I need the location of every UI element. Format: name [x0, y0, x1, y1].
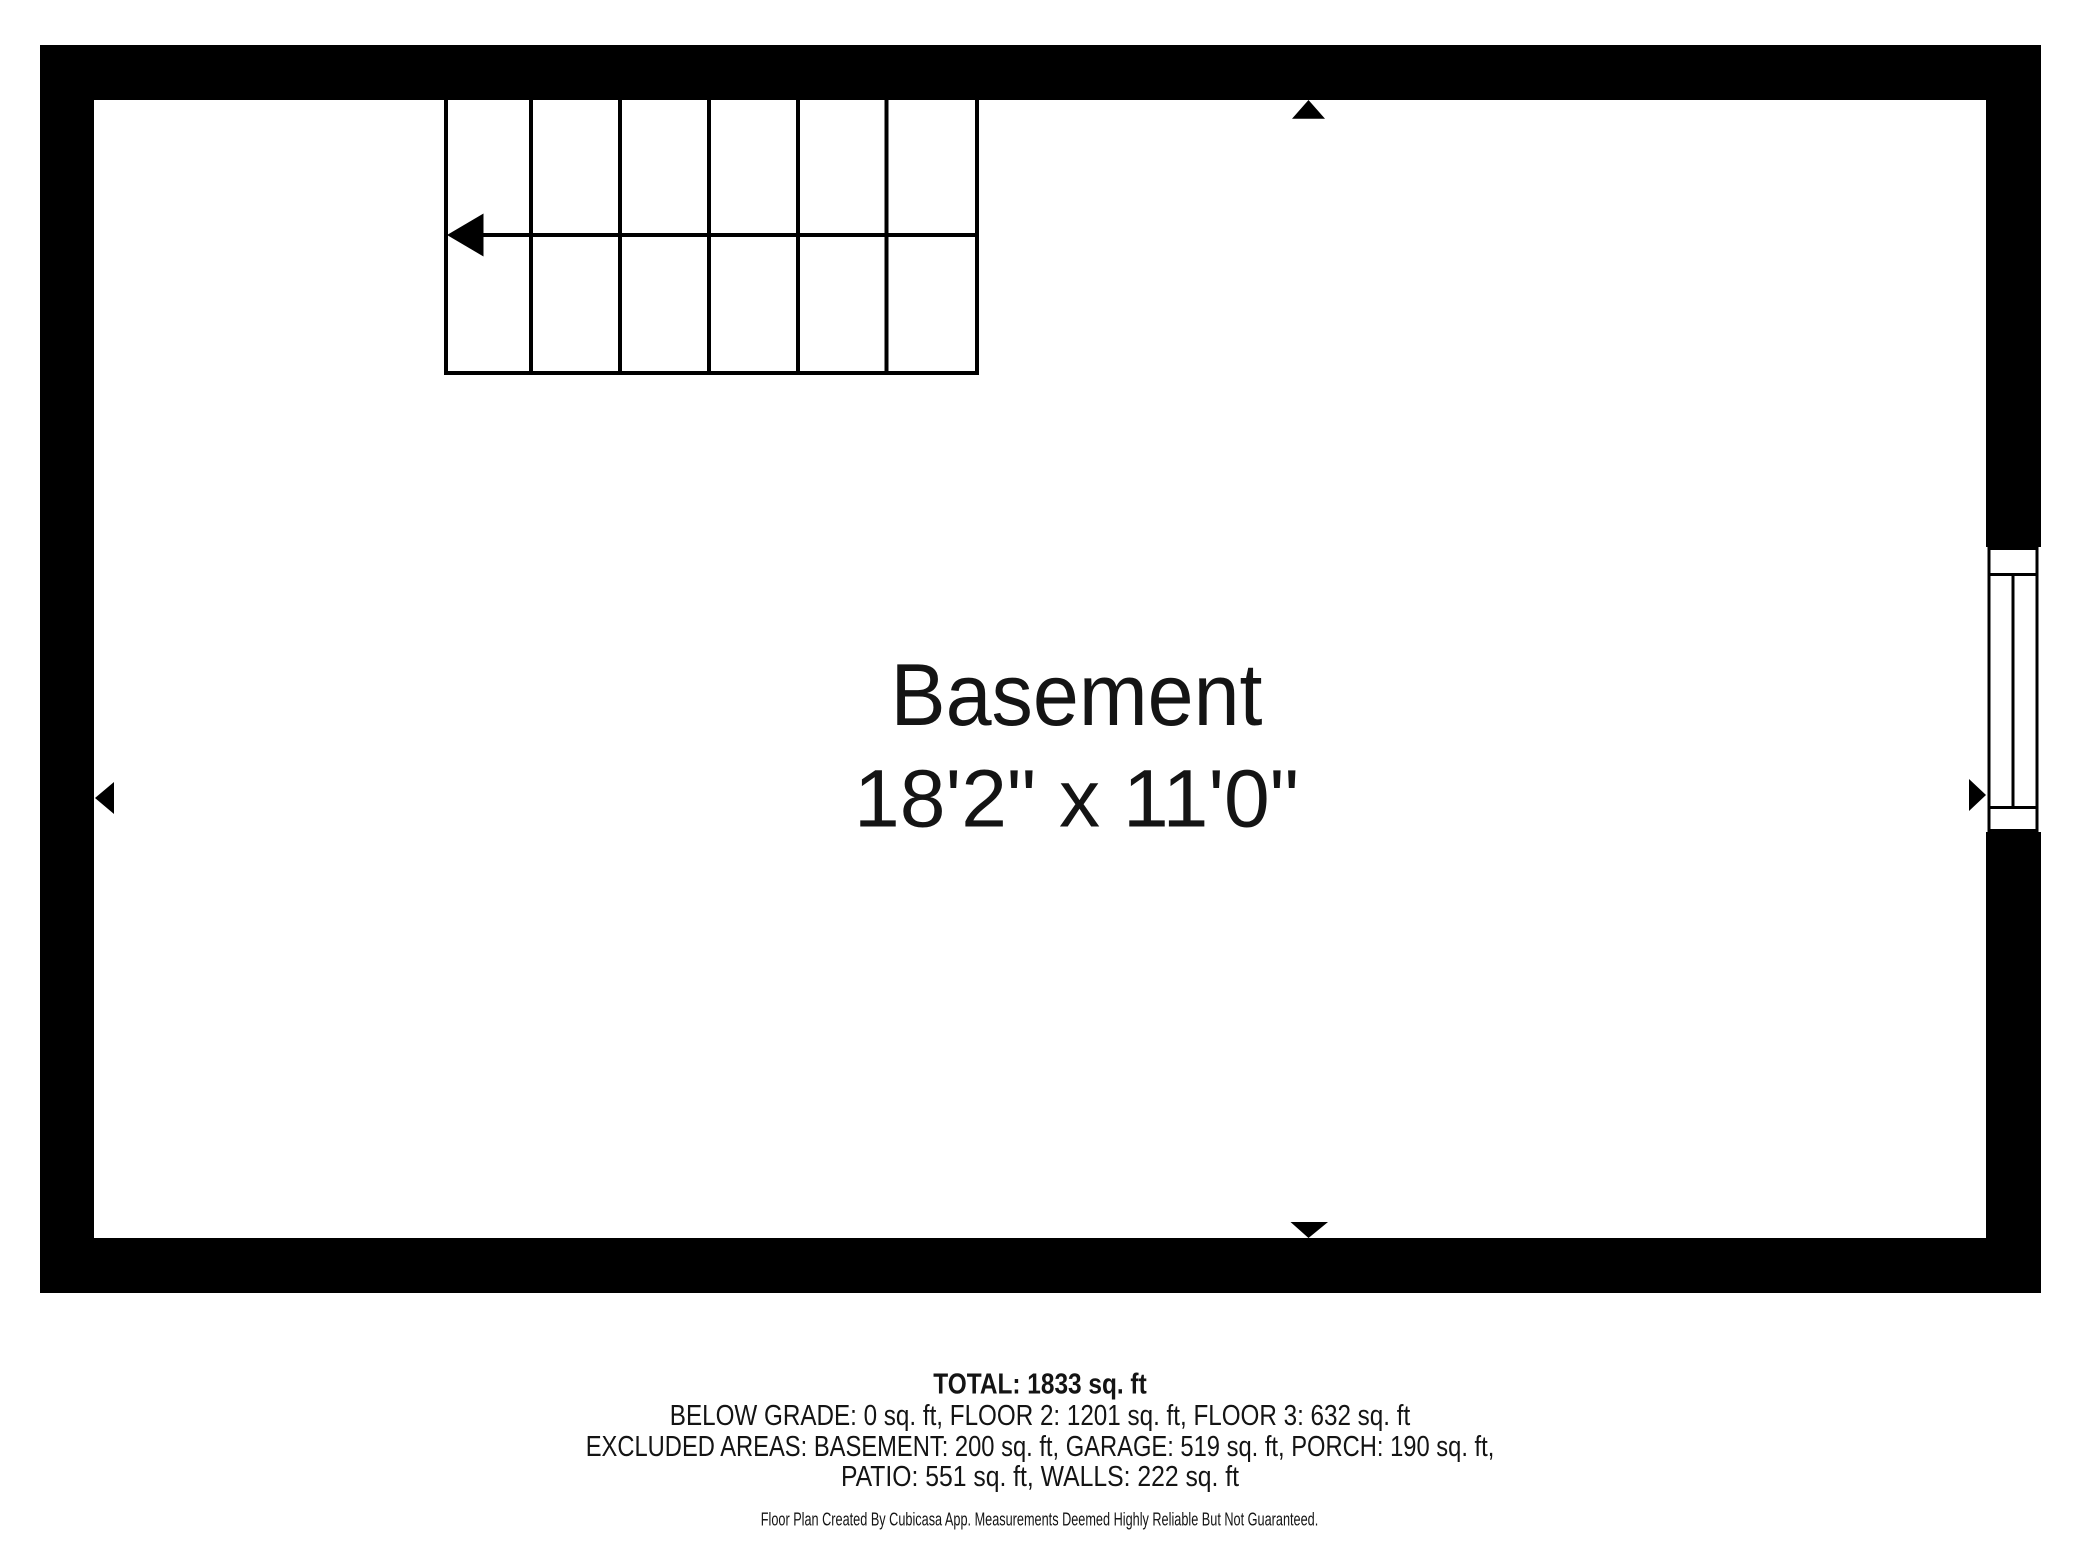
- svg-text:PATIO: 551 sq. ft, WALLS: 222: PATIO: 551 sq. ft, WALLS: 222 sq. ft: [841, 1461, 1239, 1493]
- svg-text:18'2" x 11'0": 18'2" x 11'0": [854, 754, 1299, 845]
- svg-text:Basement: Basement: [891, 645, 1263, 744]
- svg-text:EXCLUDED AREAS: BASEMENT: 200: EXCLUDED AREAS: BASEMENT: 200 sq. ft, GA…: [586, 1431, 1495, 1463]
- svg-text:BELOW GRADE: 0 sq. ft, FLOOR 2: BELOW GRADE: 0 sq. ft, FLOOR 2: 1201 sq.…: [670, 1400, 1410, 1432]
- svg-text:Floor Plan Created By Cubicasa: Floor Plan Created By Cubicasa App. Meas…: [761, 1509, 1319, 1529]
- svg-text:TOTAL: 1833 sq. ft: TOTAL: 1833 sq. ft: [933, 1368, 1147, 1400]
